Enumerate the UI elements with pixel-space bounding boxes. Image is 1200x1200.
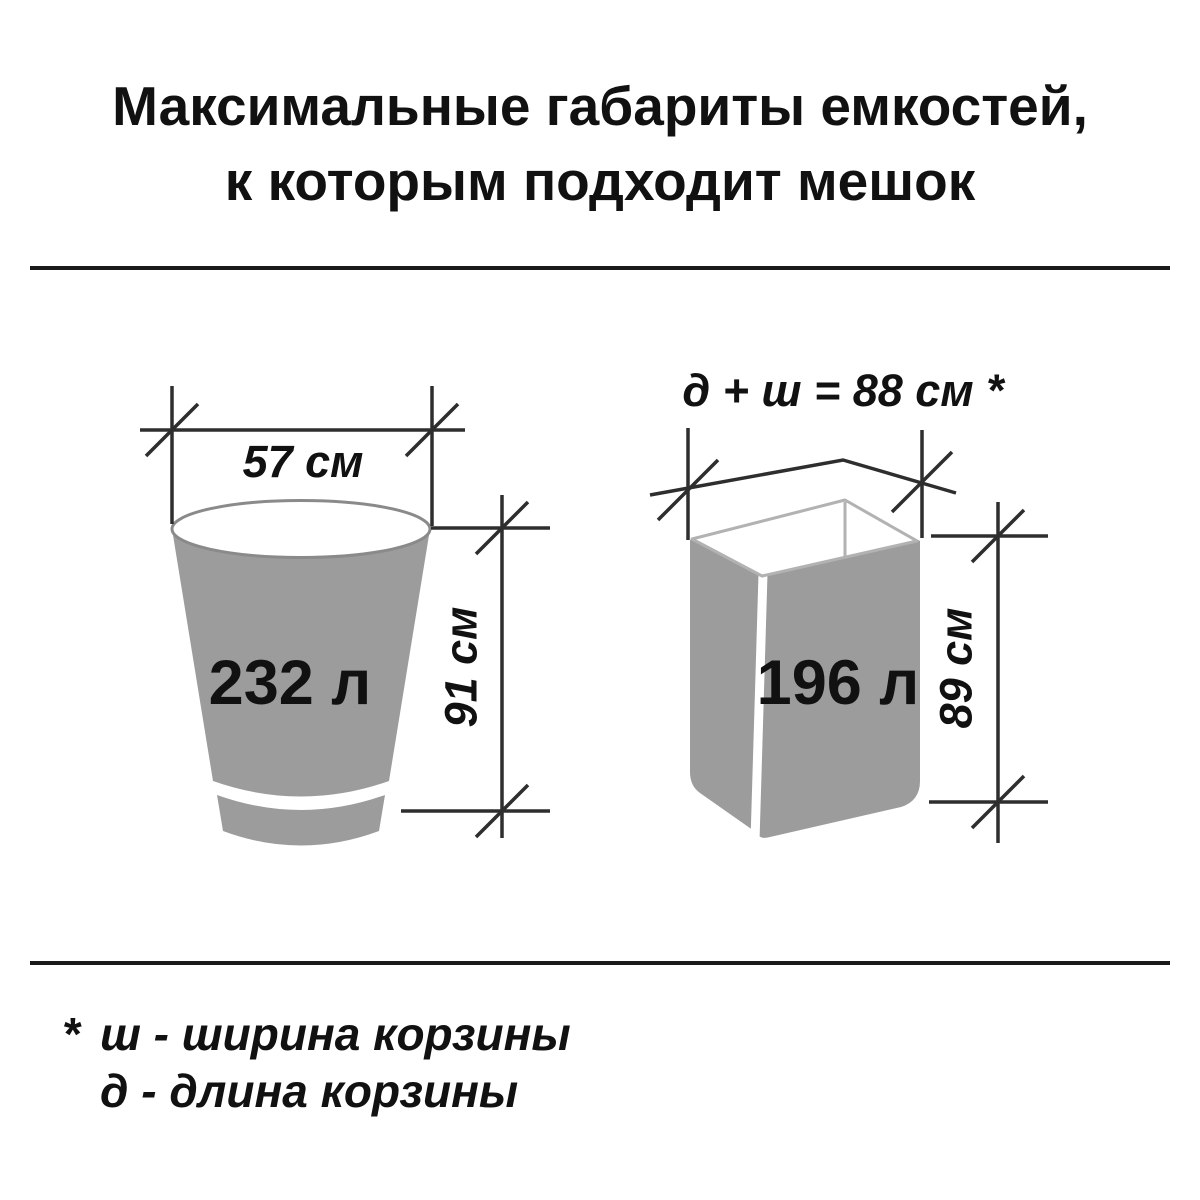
infographic: Максимальные габариты емкостей, к которы… (0, 0, 1200, 1200)
footnote-line-2: д - длина корзины (100, 1065, 518, 1117)
bucket-height-label: 91 см (436, 607, 487, 728)
bucket-rim (172, 501, 430, 558)
footnote-asterisk: * (62, 1008, 82, 1060)
footnote-line-1: ш - ширина корзины (100, 1008, 571, 1060)
basket-volume-label: 196 л (757, 648, 920, 718)
page-title: Максимальные габариты емкостей, к которы… (112, 75, 1088, 212)
bucket-volume-label: 232 л (209, 648, 372, 718)
basket-perimeter-label: д + ш = 88 см * (682, 365, 1006, 416)
bucket-base (217, 795, 385, 846)
basket-height-label: 89 см (931, 608, 982, 729)
footnote: * ш - ширина корзины д - длина корзины (62, 1008, 571, 1117)
basket-top-dimension-line (650, 460, 956, 495)
bucket-width-label: 57 см (243, 436, 364, 487)
dimensions-diagram: Максимальные габариты емкостей, к которы… (0, 0, 1200, 1200)
title-line-1: Максимальные габариты емкостей, (112, 75, 1088, 137)
title-line-2: к которым подходит мешок (225, 150, 976, 212)
